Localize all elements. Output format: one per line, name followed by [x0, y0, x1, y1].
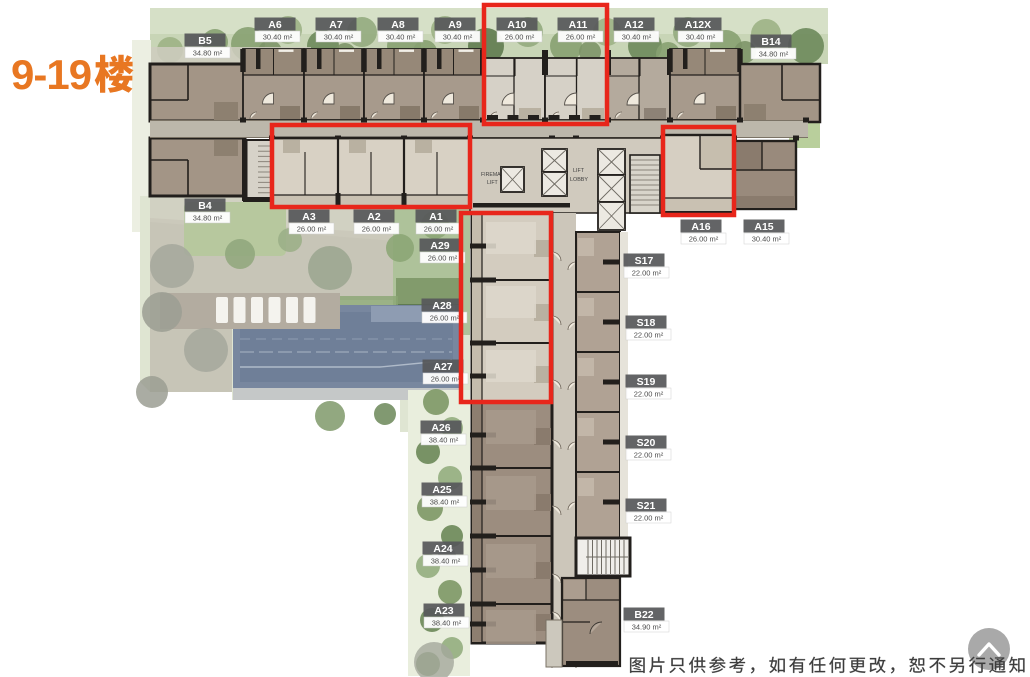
svg-text:22.00 m²: 22.00 m² [634, 514, 664, 523]
svg-text:30.40 m²: 30.40 m² [324, 33, 354, 42]
svg-text:30.40 m²: 30.40 m² [443, 33, 473, 42]
svg-text:A29: A29 [430, 240, 449, 252]
svg-text:22.00 m²: 22.00 m² [632, 269, 662, 278]
svg-text:26.00 m²: 26.00 m² [505, 33, 535, 42]
svg-text:30.40 m²: 30.40 m² [263, 33, 293, 42]
svg-text:LIFT: LIFT [487, 180, 498, 186]
svg-text:34.80 m²: 34.80 m² [193, 214, 223, 223]
svg-text:38.40 m²: 38.40 m² [430, 498, 460, 507]
svg-text:A12: A12 [624, 19, 643, 31]
svg-text:LOBBY: LOBBY [570, 177, 588, 183]
svg-text:A12X: A12X [685, 19, 711, 31]
svg-text:26.00 m²: 26.00 m² [430, 314, 460, 323]
svg-text:26.00 m²: 26.00 m² [428, 254, 458, 263]
svg-text:26.00 m²: 26.00 m² [424, 225, 454, 234]
svg-text:A16: A16 [691, 221, 710, 233]
svg-text:38.40 m²: 38.40 m² [431, 557, 461, 566]
svg-text:34.80 m²: 34.80 m² [759, 50, 789, 59]
svg-text:30.40 m²: 30.40 m² [686, 33, 716, 42]
svg-text:A11: A11 [569, 19, 588, 31]
svg-text:A1: A1 [429, 211, 443, 223]
svg-text:B14: B14 [761, 36, 780, 48]
svg-text:A28: A28 [432, 300, 451, 312]
svg-text:S21: S21 [637, 500, 656, 512]
svg-text:26.00 m²: 26.00 m² [566, 33, 596, 42]
svg-text:26.00 m²: 26.00 m² [362, 225, 392, 234]
svg-text:A15: A15 [754, 221, 773, 233]
svg-text:A9: A9 [448, 19, 462, 31]
svg-text:26.00 m²: 26.00 m² [431, 375, 461, 384]
svg-text:B4: B4 [198, 200, 212, 212]
svg-text:A6: A6 [268, 19, 282, 31]
svg-text:S18: S18 [637, 317, 656, 329]
svg-text:A8: A8 [391, 19, 405, 31]
svg-text:34.80 m²: 34.80 m² [193, 49, 223, 58]
svg-text:30.40 m²: 30.40 m² [622, 33, 652, 42]
svg-text:38.40 m²: 38.40 m² [429, 436, 459, 445]
svg-text:A10: A10 [507, 19, 526, 31]
svg-text:22.00 m²: 22.00 m² [634, 331, 664, 340]
svg-text:38.40 m²: 38.40 m² [432, 619, 462, 628]
svg-text:S19: S19 [637, 376, 656, 388]
svg-text:30.40 m²: 30.40 m² [752, 235, 782, 244]
svg-text:A7: A7 [329, 19, 343, 31]
svg-text:A25: A25 [432, 484, 451, 496]
svg-text:26.00 m²: 26.00 m² [297, 225, 327, 234]
svg-text:30.40 m²: 30.40 m² [386, 33, 416, 42]
svg-text:9-19: 9-19 [11, 51, 91, 98]
svg-text:26.00 m²: 26.00 m² [689, 235, 719, 244]
svg-text:22.00 m²: 22.00 m² [634, 451, 664, 460]
svg-text:A27: A27 [433, 361, 452, 373]
svg-text:S20: S20 [637, 437, 656, 449]
svg-text:B5: B5 [198, 35, 212, 47]
svg-text:B22: B22 [634, 609, 653, 621]
svg-text:A23: A23 [434, 605, 453, 617]
svg-text:34.90 m²: 34.90 m² [632, 623, 662, 632]
svg-text:A26: A26 [431, 422, 450, 434]
svg-text:A24: A24 [433, 543, 452, 555]
svg-text:LIFT: LIFT [573, 168, 585, 174]
svg-text:A3: A3 [302, 211, 316, 223]
svg-text:A2: A2 [367, 211, 381, 223]
svg-text:S17: S17 [635, 255, 654, 267]
svg-text:22.00 m²: 22.00 m² [634, 390, 664, 399]
